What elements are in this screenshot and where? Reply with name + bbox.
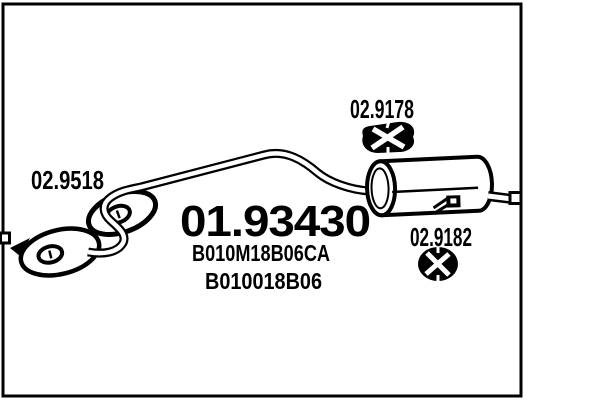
gasket-part-number-label: 02.9518	[31, 165, 104, 195]
tailpipe-tip	[510, 193, 521, 204]
exhaust-diagram-canvas: 02.9518 02.9178 02.9182 01.93430 B010M18…	[0, 0, 600, 400]
rubber-mount-icon	[418, 247, 458, 281]
tailpipe	[488, 193, 521, 204]
rubber-hanger-icon	[362, 121, 414, 154]
rear-muffler	[366, 156, 492, 215]
catalog-diagram-page: 02.9518 02.9178 02.9182 01.93430 B010M18…	[0, 0, 600, 400]
oem-reference-number-1: B010M18B06CA	[192, 240, 330, 266]
oem-reference-number-2: B010018B06	[205, 268, 322, 294]
muffler-end-cap-inner	[371, 168, 389, 208]
mount-node-square	[1, 233, 10, 243]
hanger-right-part-number-label: 02.9182	[410, 222, 472, 252]
main-part-number: 01.93430	[180, 197, 370, 246]
hanger-top-part-number-label: 02.9178	[350, 94, 414, 124]
